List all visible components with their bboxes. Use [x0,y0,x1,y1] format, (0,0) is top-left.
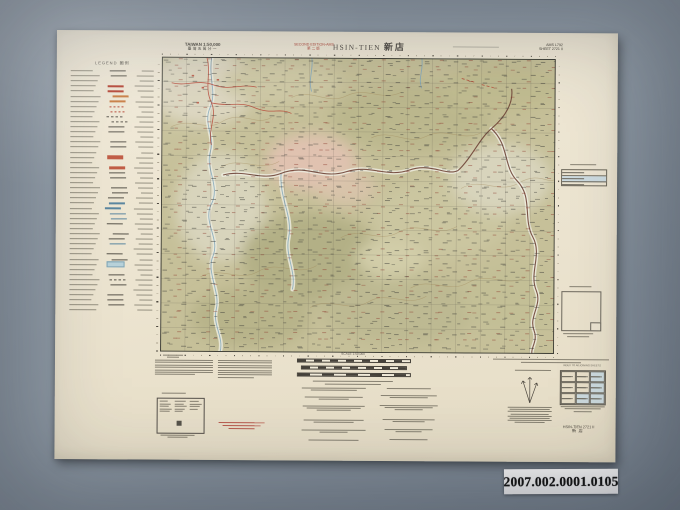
legend-greek-text [69,304,98,305]
table-title [561,164,605,166]
header-faint-note [452,46,500,48]
legend-symbol [110,75,126,76]
imprint-note [298,396,370,401]
diagram-caption [159,435,197,440]
legend-symbol [109,70,125,71]
legend-symbol [108,305,124,306]
greek-line [305,397,363,398]
legend-greek-text [137,132,153,133]
greek-line [385,407,433,408]
legend-greek-text [70,223,95,224]
legend-greek-text [70,213,99,214]
legend-symbol [107,156,123,160]
legend-greek-text [70,254,92,255]
legend-greek-text [70,192,98,193]
legend-symbol [113,96,129,98]
legend-symbol [112,193,128,194]
greek-line [569,286,591,287]
greek-line [319,399,349,400]
greek-line [563,333,593,334]
legend-greek-text [69,310,96,311]
legend-greek-text [135,264,153,265]
greek-line [508,411,552,412]
legend-greek-text [70,228,93,229]
catalog-number: 2007.002.0001.0105 [503,473,618,490]
legend-symbol [107,223,123,224]
legend-symbol [109,238,125,239]
legend-greek-text [70,264,97,265]
legend-greek-text [139,162,153,163]
greek-line [303,406,365,407]
sheet-ref-line2: SHEET 2721 II [517,47,563,51]
legend-greek-text [70,177,95,178]
adjoining-sheet-cell [576,371,591,382]
diagram-title [159,393,189,395]
legend-greek-text [134,127,153,128]
series-title-line2: 臺灣五萬分一 [185,47,221,52]
imprint-note [298,405,370,412]
legend-greek-text [138,228,153,229]
greek-line [308,440,358,441]
greek-line [302,388,366,389]
legend-greek-text [141,234,153,235]
map-image [160,57,556,354]
declination-caption [513,370,553,372]
greek-line [574,411,592,412]
legend-symbol [108,131,124,132]
legend-greek-text [69,279,99,280]
legend-symbol [108,126,124,127]
diagram-square [177,421,182,426]
legend-greek-text [71,80,98,81]
greek-line [218,360,272,361]
series-title: TAIWAN 1:50,000 臺灣五萬分一 [185,42,221,52]
imprint-note [377,419,441,424]
greek-line [223,425,261,426]
adjoining-sheet-cell [590,371,605,382]
legend-symbol [110,177,126,178]
greek-line [508,420,552,421]
greek-line [385,429,433,430]
legend-greek-text [70,172,97,173]
legend-greek-text [137,310,152,311]
legend-greek-text [70,157,94,158]
greek-line [570,164,596,165]
legend-greek-text [135,142,153,143]
greek-line [567,336,589,337]
greek-line [162,393,186,394]
greek-line [155,364,213,365]
greek-line [218,377,254,378]
legend-greek-text [135,86,154,87]
legend-greek-text [70,274,93,275]
legend-greek-text [70,141,100,142]
legend-symbol [108,90,124,92]
adjoining-sheet-cell [561,393,576,404]
legend-greek-text [70,136,93,137]
legend-symbol [110,106,126,107]
legend-symbol [110,111,126,112]
legend-symbol [106,249,122,250]
legend-row [69,307,152,313]
legend-greek-text [69,299,91,300]
inset-notch [590,322,601,331]
adjoining-sheet-cell [590,393,605,404]
legend-greek-text [69,289,95,290]
legend-symbol [109,274,125,275]
legend-greek-text [70,126,97,127]
legend-symbol [106,289,122,290]
map-right-ticks [557,59,560,354]
greek-line [304,420,364,421]
greek-line [155,374,195,375]
legend-greek-text [138,284,152,285]
adjoining-sheets-grid [560,370,606,405]
adjoining-sheets-title: INDEX TO ADJOINING SHEETS [553,364,611,367]
legend-greek-text [134,167,153,168]
greek-line [510,418,550,419]
legend-greek-text [70,162,92,163]
margin-note [161,355,185,360]
legend-greek-text [70,259,99,260]
table-row [562,182,606,187]
legend-greek-text [140,137,153,138]
greek-line [168,437,188,438]
diagram-column [160,401,173,414]
legend-greek-text [137,76,154,77]
legend-symbol [106,182,122,183]
legend-symbol [109,137,125,138]
legend-greek-text [70,147,98,148]
legend-greek-text [70,197,96,198]
legend-symbol [107,85,123,87]
legend-greek-text [70,269,95,270]
greek-line [390,439,428,440]
scale-bar-2 [301,365,407,370]
legend-greek-text [141,111,153,112]
greek-line [380,405,438,406]
corner-id-line2: 新店 [553,429,605,434]
legend-greek-text [141,193,153,194]
red-warning-note [217,422,267,432]
legend-greek-text [70,248,94,249]
greek-line [565,408,601,409]
legend-symbol [109,166,125,170]
legend-symbol [107,294,123,295]
legend-greek-text [70,167,99,168]
legend-greek-text [135,279,152,280]
greek-line [155,362,213,363]
greek-line [155,372,213,373]
legend-greek-text [70,203,94,204]
legend-greek-text [70,131,95,132]
legend-greek-text [70,233,100,234]
legend-greek-text [70,182,93,183]
greek-line [493,359,609,361]
legend-greek-text [70,208,92,209]
greek-line [508,407,552,408]
greek-line [163,355,183,356]
greek-line [218,365,272,366]
legend-symbol [109,101,125,103]
legend-greek-text [70,116,92,117]
greek-line [325,384,381,385]
legend-greek-text [140,259,153,260]
legend-greek-text [71,75,100,76]
greek-line [218,367,272,368]
legend-symbol [109,172,125,173]
legend-greek-text [139,244,153,245]
scale-bar-1 [297,358,411,363]
adjoining-note [560,406,606,413]
legend-greek-text [136,295,152,296]
adjoining-sheet-cell [590,382,605,393]
legend-greek-text [136,198,153,199]
legend-greek-text [140,218,153,219]
edition-line2: 第二版 [291,47,337,51]
legend-greek-text [134,249,153,250]
legend-symbol [111,81,127,82]
declination-diagram [513,375,547,405]
scale-sub-notes [305,381,401,388]
greek-line [307,408,361,409]
diagram-column [190,401,203,411]
legend-greek-text [134,208,153,209]
greek-line [219,422,265,423]
greek-line [161,435,195,436]
legend-greek-text [138,188,153,189]
imprint-note [377,388,441,391]
greek-line [393,421,425,422]
legend-greek-text [138,147,153,148]
catalog-label: 2007.002.0001.0105 [504,469,618,495]
scale-bar-3 [297,372,411,377]
map-title-cjk: 新店 [384,42,406,52]
greek-line [302,430,366,431]
legend-greek-text [71,85,96,86]
legend-greek-text [136,239,153,240]
legend: LEGEND 圖例 [69,60,154,313]
map-title-latin: HSIN-TIEN [333,43,381,52]
legend-symbol [108,203,124,204]
greek-line [320,432,348,433]
greek-line [381,395,437,396]
inset-location-box [561,291,601,331]
legend-greek-text [137,213,153,214]
adjoining-sheet-cell [561,371,576,382]
greek-line [508,416,552,417]
diagram-column [175,401,188,414]
legend-greek-text [136,157,153,158]
legend-title: LEGEND 圖例 [71,60,154,67]
legend-greek-text [139,121,153,122]
legend-symbol [105,208,121,209]
greek-line [314,422,354,423]
adjoining-sheet-cell [561,382,576,393]
greek-line [218,362,272,363]
legend-greek-text [137,254,153,255]
legend-greek-text [142,71,154,72]
legend-symbol [111,121,127,122]
greek-line [510,409,550,410]
grid-reference-note [492,359,610,365]
legend-rows [69,68,153,313]
legend-greek-text [141,152,153,153]
legend-greek-text [71,111,95,112]
legend-greek-text [71,101,99,102]
corner-sheet-id: HSIN-TIEN 2721 II 新店 [553,425,605,435]
imprint-note [298,429,370,434]
imprint-note [298,419,370,424]
legend-symbol [108,269,124,270]
elevation-key-table [561,169,607,186]
photo-of-map: TAIWAN 1:50,000 臺灣五萬分一 SECOND EDITION-AM… [0,0,680,510]
imprint-note [377,395,441,400]
legend-symbol [109,243,125,244]
imprint-note [377,405,441,412]
legend-symbol [110,218,126,219]
greek-line [155,367,213,368]
greek-line [395,409,423,410]
legend-symbol [106,116,122,117]
legend-greek-text [139,300,152,301]
legend-greek-text [71,106,97,107]
margin-note [561,333,595,338]
greek-line [453,46,499,47]
declination-note [507,407,553,425]
sheet-reference: AMS L792 SHEET 2721 II [517,43,563,52]
map-sheet: TAIWAN 1:50,000 臺灣五萬分一 SECOND EDITION-AM… [54,30,618,462]
adjoining-sheet-cell [575,393,590,404]
legend-symbol [107,300,123,301]
legend-symbol [109,279,125,280]
legend-symbol [110,213,126,214]
legend-greek-text [140,81,154,82]
legend-greek-text [70,152,96,153]
greek-line [396,431,422,432]
map-title: HSIN-TIEN 新店 [333,40,406,53]
legend-greek-text [138,269,153,270]
legend-symbol [108,162,124,163]
legend-symbol [108,198,124,199]
legend-greek-text [141,96,154,97]
legend-greek-text [70,218,97,219]
credit-note-paragraph [155,360,213,377]
legend-greek-text [139,106,154,107]
greek-line [390,397,428,398]
greek-line [511,413,549,414]
imprint-note [376,439,440,442]
legend-symbol [110,147,126,148]
legend-greek-text [70,187,100,188]
greek-line [383,419,435,420]
legend-greek-text [70,121,99,122]
greek-line [229,428,255,429]
legend-greek-text [70,238,98,239]
boundaries-diagram [157,398,205,434]
legend-symbol [107,261,125,267]
legend-symbol [111,152,127,153]
greek-line [317,410,351,411]
greek-line [515,370,551,371]
greek-line [155,360,213,361]
legend-greek-text [70,243,96,244]
greek-line [167,357,179,358]
legend-greek-text [71,91,94,92]
edition-note: SECOND EDITION-AMS 第二版 [291,42,337,51]
credit-note-paragraph [218,360,272,379]
legend-symbol [110,142,126,143]
legend-symbol [111,259,127,260]
legend-symbol [111,188,127,189]
greek-line [515,422,545,423]
greek-line [155,369,213,370]
legend-greek-text [136,101,154,102]
legend-symbol [112,233,128,234]
greek-line [218,370,272,371]
legend-symbol [110,284,126,285]
greek-line [218,374,272,375]
imprint-note [298,387,370,392]
legend-greek-text [141,274,153,275]
legend-greek-text [140,178,153,179]
legend-symbol [106,254,122,255]
legend-greek-text [134,305,152,306]
greek-line [521,361,581,362]
scale-label: SCALE 1:50,000 [297,351,409,356]
greek-line [218,372,272,373]
greek-line [313,381,393,382]
legend-greek-text [69,284,97,285]
greek-line [561,406,605,407]
greek-line [311,390,357,391]
legend-symbol [107,228,123,229]
legend-greek-text [138,91,154,92]
adjoining-sheet-cell [575,382,590,393]
imprint-note [297,439,369,442]
legend-symbol [109,310,125,311]
legend-greek-text [139,203,153,204]
greek-line [387,388,431,389]
legend-greek-text [133,290,152,291]
legend-greek-text [135,223,153,224]
legend-greek-text [71,70,93,71]
map-left-ticks [156,57,159,352]
legend-greek-text [136,116,153,117]
inset-box-title [561,286,599,288]
legend-greek-text [69,294,93,295]
legend-greek-text [71,96,101,97]
legend-greek-text [135,183,153,184]
legend-greek-text [137,172,153,173]
imprint-note [377,429,441,434]
